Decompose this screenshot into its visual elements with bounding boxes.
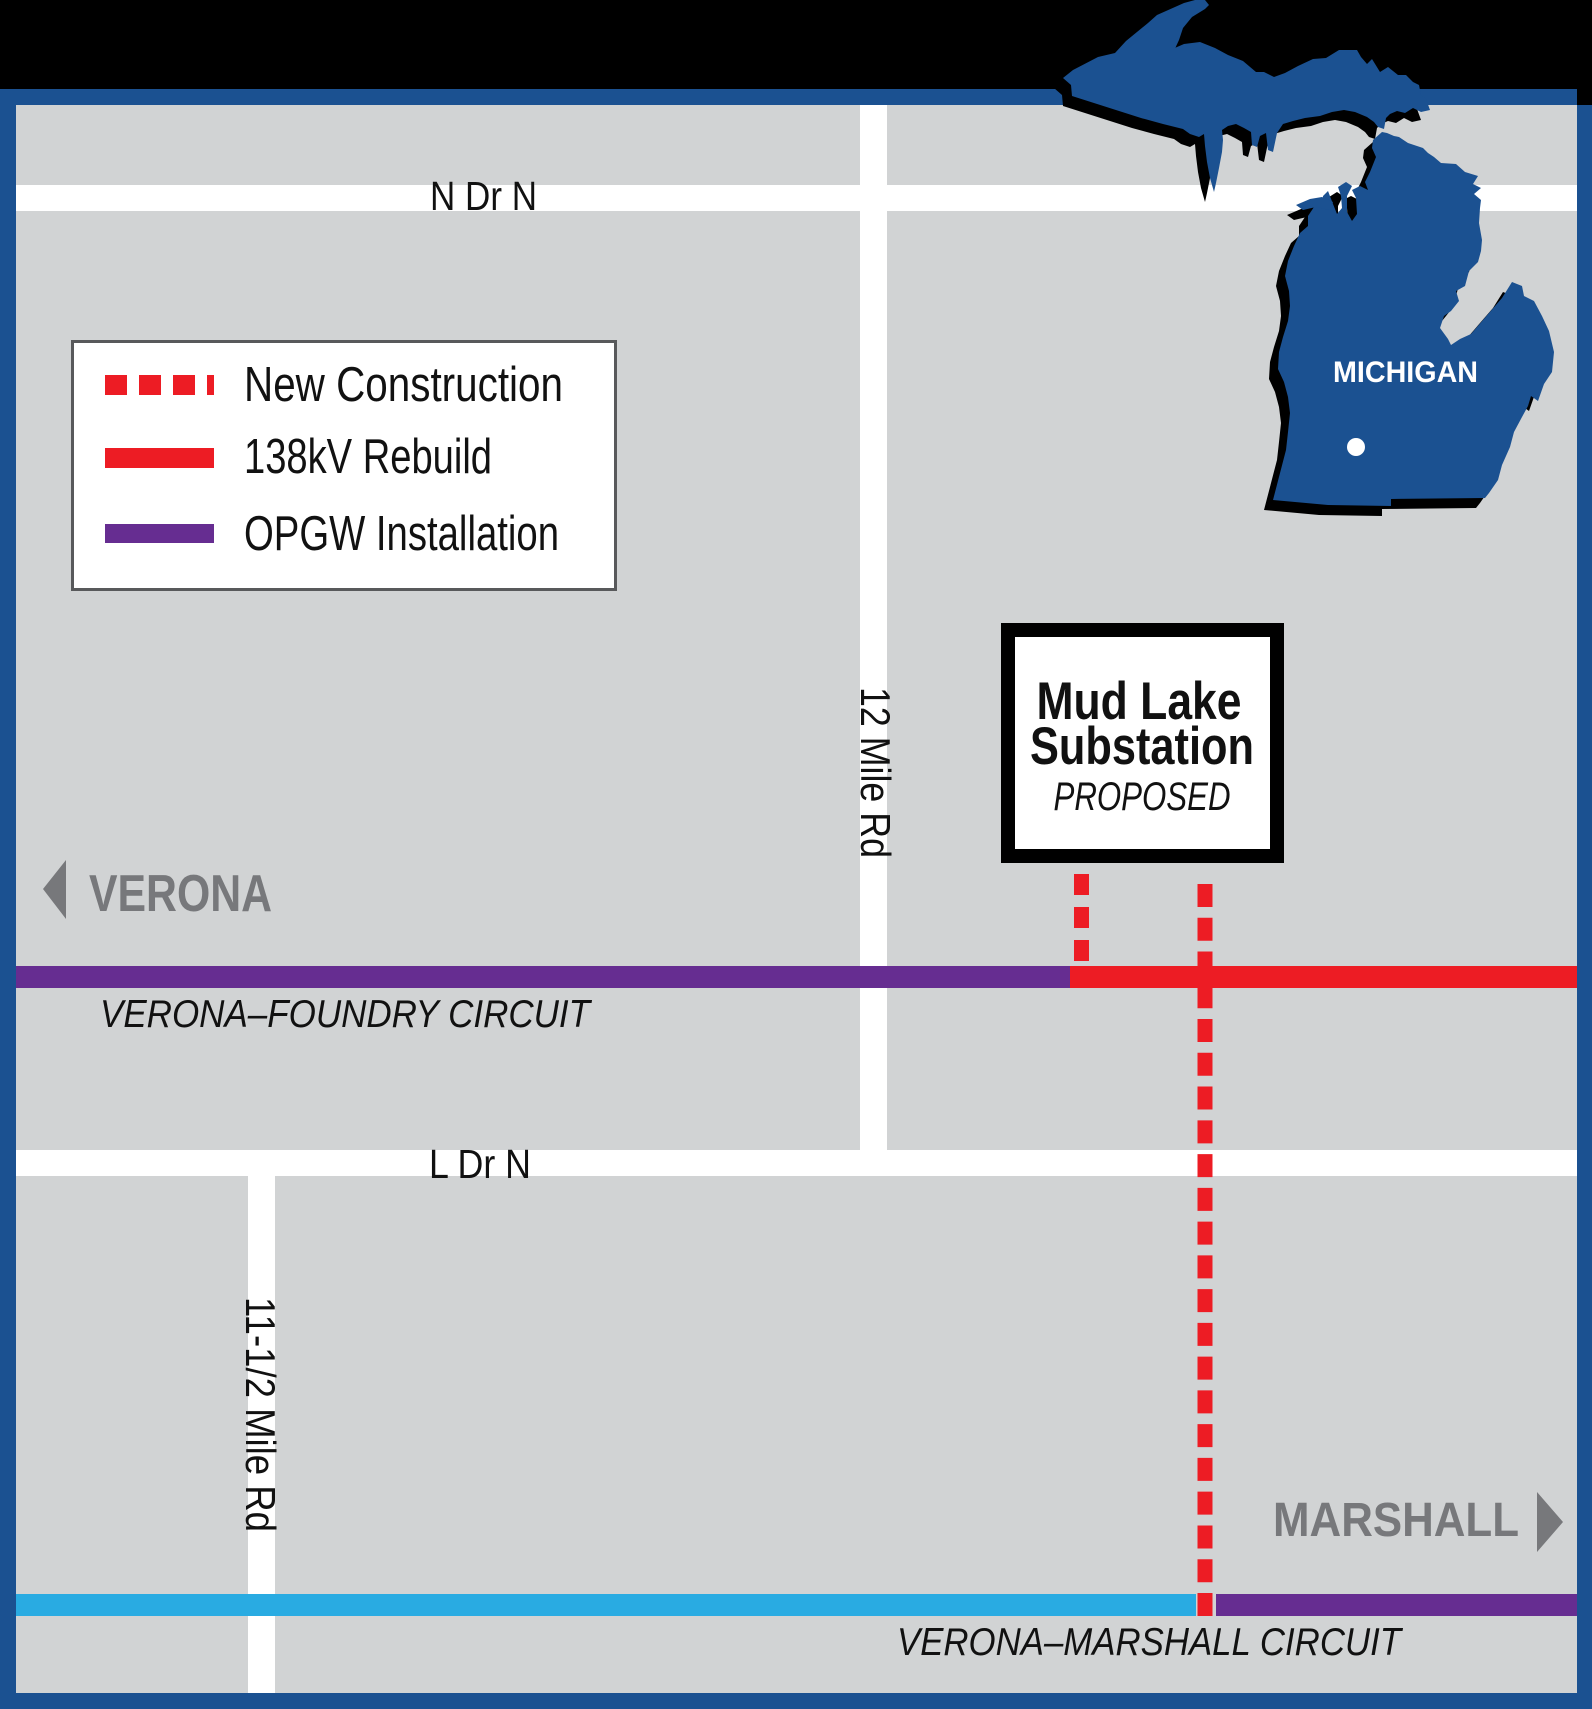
svg-text:VERONA–FOUNDRY CIRCUIT: VERONA–FOUNDRY CIRCUIT [100, 993, 593, 1036]
svg-text:PROPOSED: PROPOSED [1054, 775, 1231, 819]
svg-text:VERONA: VERONA [89, 865, 272, 923]
svg-text:138kV Rebuild: 138kV Rebuild [244, 430, 492, 484]
svg-text:New Construction: New Construction [244, 358, 563, 412]
svg-text:MICHIGAN: MICHIGAN [1333, 356, 1478, 389]
svg-text:L Dr N: L Dr N [429, 1141, 531, 1187]
svg-text:11-1/2 Mile Rd: 11-1/2 Mile Rd [237, 1297, 284, 1532]
svg-text:12 Mile Rd: 12 Mile Rd [852, 687, 899, 858]
svg-text:OPGW Installation: OPGW Installation [244, 507, 559, 561]
svg-text:Substation: Substation [1030, 717, 1254, 776]
svg-text:VERONA–MARSHALL CIRCUIT: VERONA–MARSHALL CIRCUIT [897, 1621, 1404, 1664]
svg-text:N Dr N: N Dr N [430, 173, 537, 219]
svg-text:MARSHALL: MARSHALL [1273, 1494, 1519, 1547]
